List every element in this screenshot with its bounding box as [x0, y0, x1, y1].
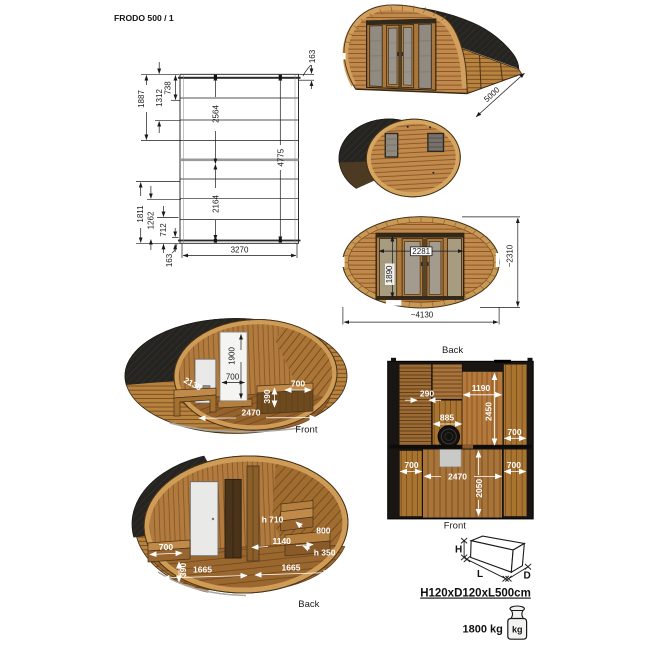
- svg-text:H120xD120xL500cm: H120xD120xL500cm: [420, 588, 531, 600]
- svg-text:1665: 1665: [193, 565, 212, 575]
- svg-text:1312: 1312: [155, 89, 164, 107]
- svg-text:390: 390: [262, 389, 272, 403]
- svg-text:h 350: h 350: [314, 548, 336, 558]
- svg-text:800: 800: [316, 526, 330, 536]
- svg-text:L: L: [477, 569, 483, 580]
- svg-text:390: 390: [178, 563, 188, 577]
- svg-text:1811: 1811: [136, 205, 145, 223]
- svg-text:4775: 4775: [277, 148, 286, 166]
- svg-text:Back: Back: [442, 345, 463, 356]
- svg-text:712: 712: [159, 223, 168, 237]
- svg-text:Back: Back: [298, 599, 319, 610]
- svg-text:1140: 1140: [272, 536, 291, 546]
- svg-text:1262: 1262: [147, 211, 156, 229]
- svg-text:2470: 2470: [448, 471, 467, 481]
- svg-text:~4130: ~4130: [411, 310, 434, 319]
- svg-text:2450: 2450: [484, 402, 494, 421]
- svg-text:1800 kg: 1800 kg: [463, 624, 503, 636]
- svg-text:2281: 2281: [412, 247, 430, 256]
- svg-text:700: 700: [507, 427, 521, 437]
- svg-text:700: 700: [226, 373, 240, 382]
- svg-text:163: 163: [165, 253, 174, 267]
- svg-text:1190: 1190: [472, 383, 491, 393]
- svg-text:2164: 2164: [212, 195, 221, 213]
- svg-text:2564: 2564: [212, 105, 221, 123]
- svg-text:1890: 1890: [385, 265, 394, 283]
- svg-text:163: 163: [308, 49, 317, 63]
- svg-text:kg: kg: [512, 625, 523, 635]
- svg-text:700: 700: [291, 379, 305, 389]
- svg-text:FRODO 500 / 1: FRODO 500 / 1: [114, 13, 174, 23]
- svg-text:D: D: [524, 571, 531, 582]
- svg-text:700: 700: [404, 460, 418, 470]
- svg-text:885: 885: [440, 413, 454, 423]
- svg-text:3270: 3270: [231, 246, 249, 255]
- svg-text:2050: 2050: [474, 479, 484, 498]
- svg-text:1665: 1665: [282, 563, 301, 573]
- svg-text:h 710: h 710: [262, 515, 284, 525]
- svg-text:700: 700: [507, 460, 521, 470]
- svg-text:1887: 1887: [137, 90, 146, 108]
- svg-text:H: H: [455, 545, 462, 556]
- svg-text:290: 290: [420, 389, 434, 399]
- svg-text:2470: 2470: [242, 408, 261, 418]
- svg-text:738: 738: [164, 81, 173, 95]
- svg-text:700: 700: [159, 542, 173, 552]
- svg-text:1900: 1900: [228, 347, 237, 365]
- svg-text:Front: Front: [444, 521, 467, 532]
- svg-text:~2310: ~2310: [506, 244, 515, 267]
- svg-text:Front: Front: [295, 424, 318, 435]
